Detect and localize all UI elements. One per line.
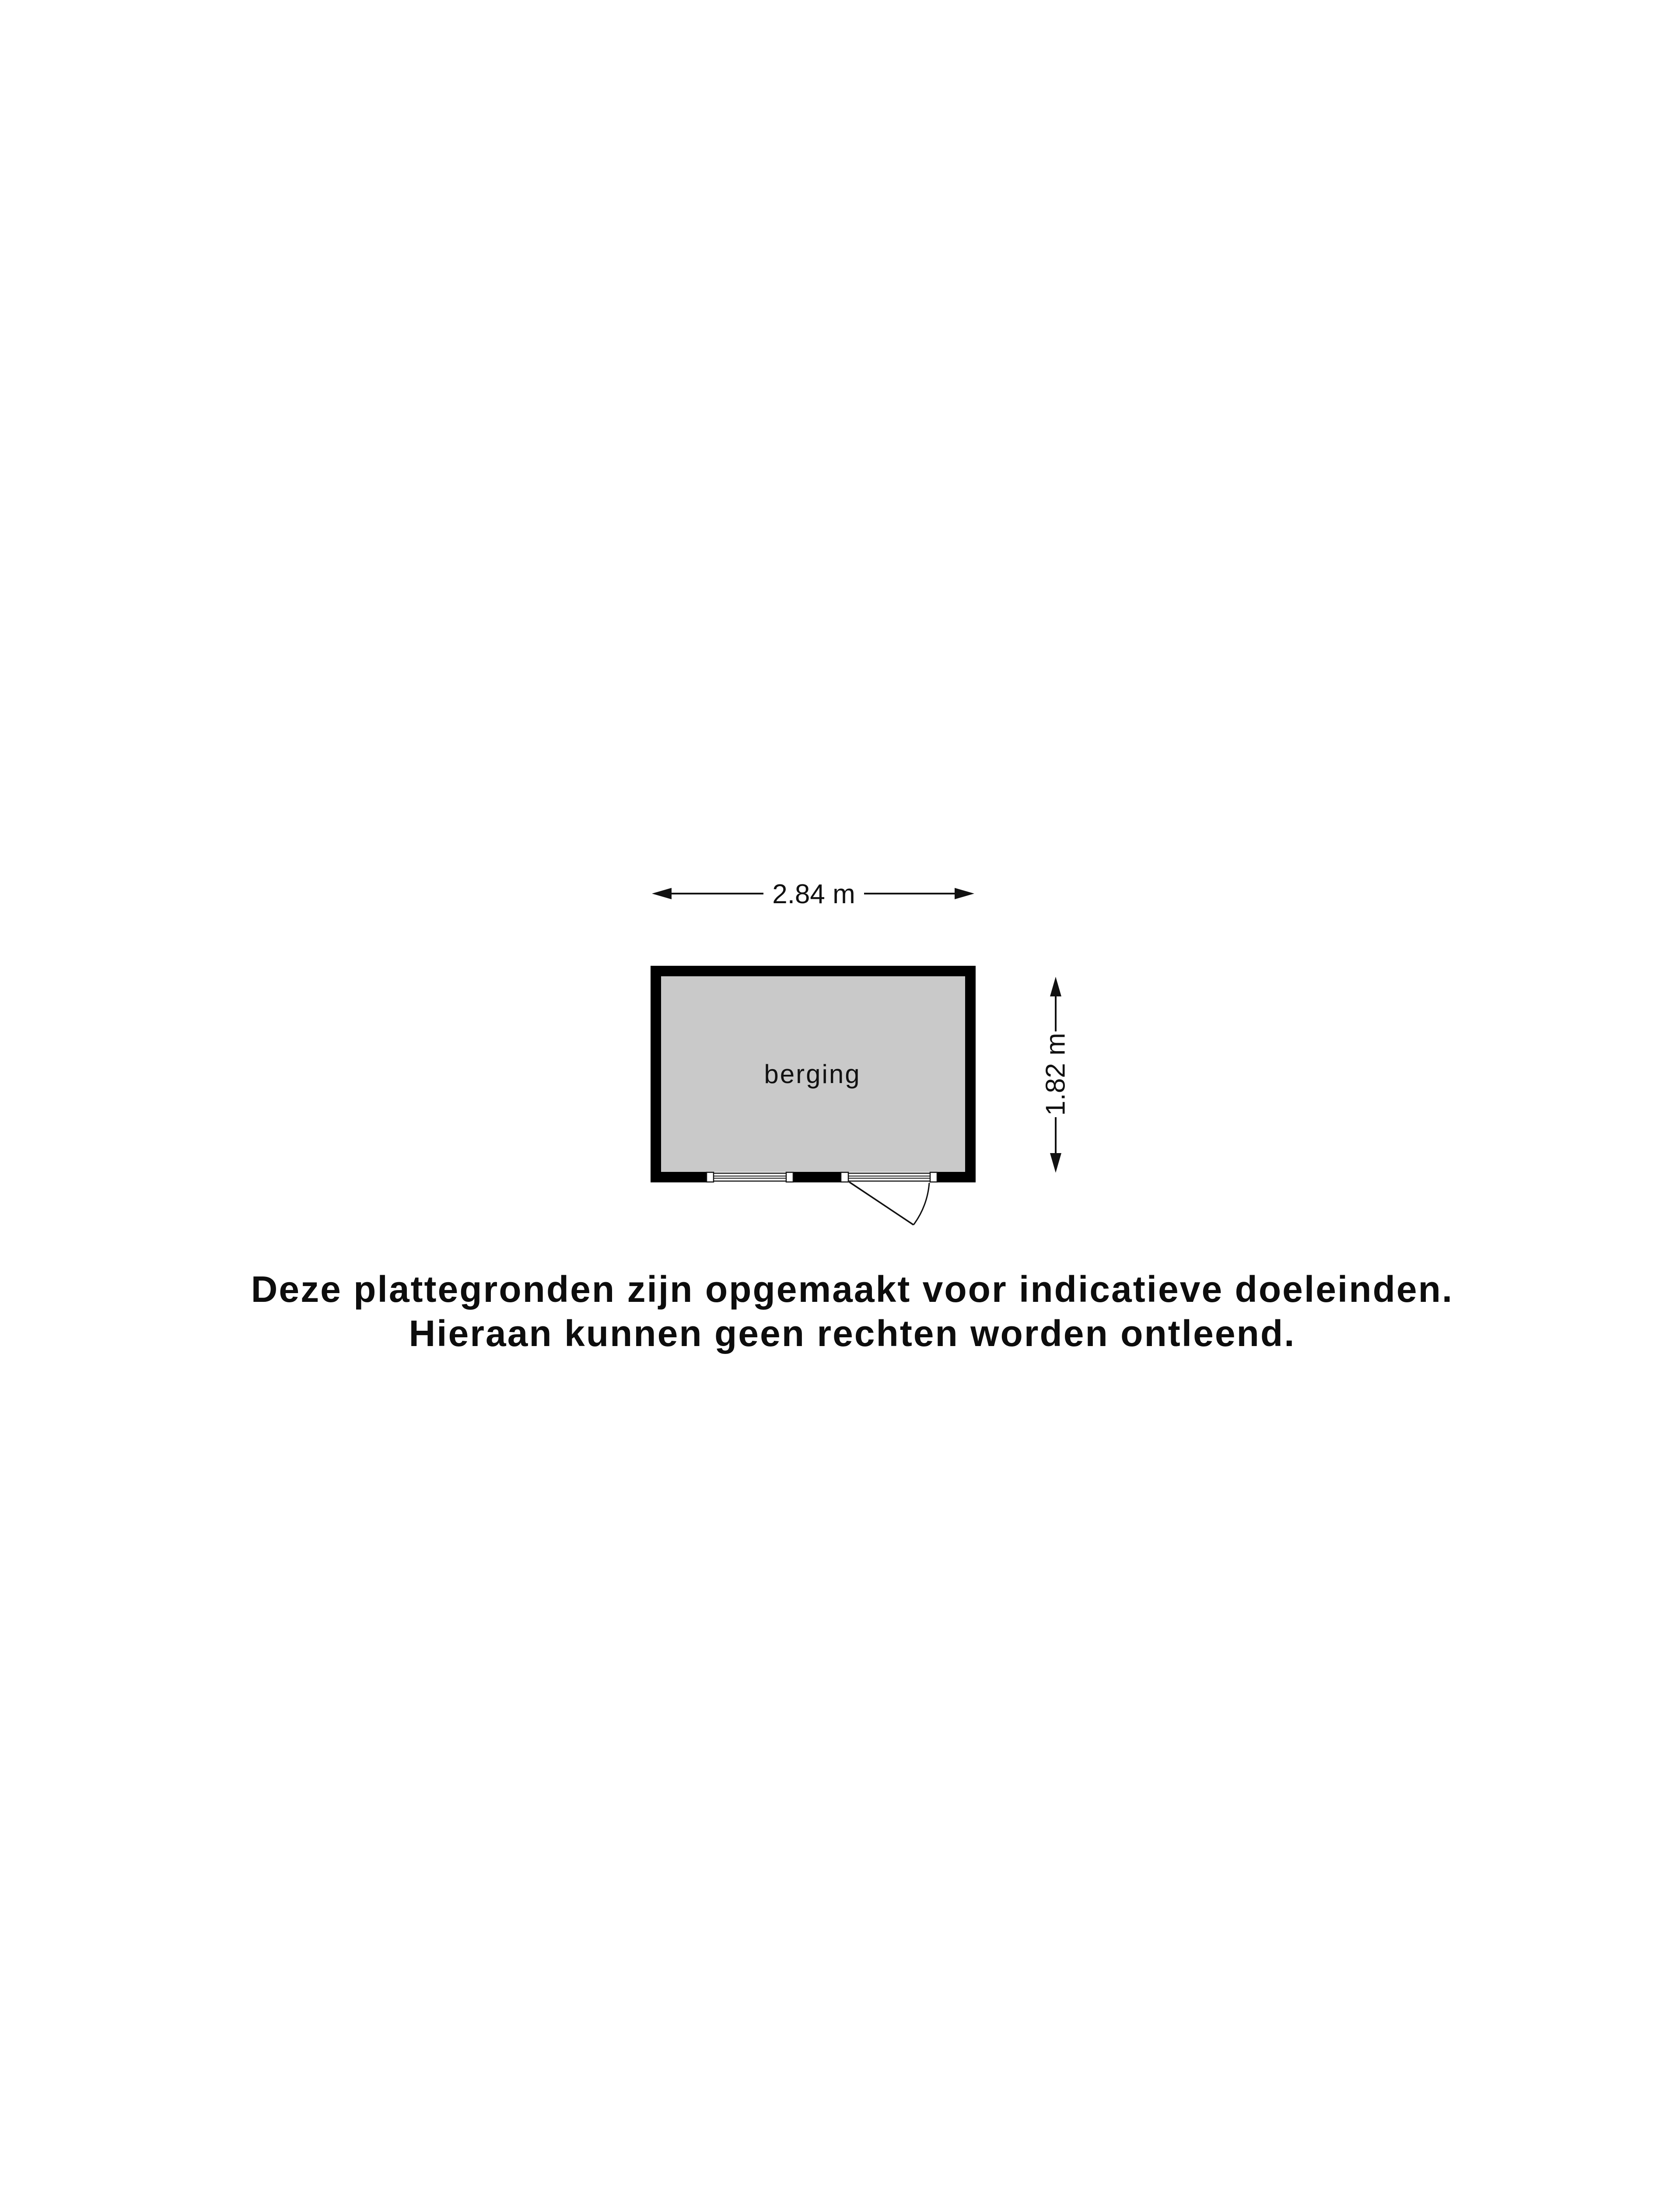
- width-dimension: 2.84 m: [652, 879, 974, 909]
- door-glazing: [848, 1173, 931, 1181]
- disclaimer: Deze plattegronden zijn opgemaakt voor i…: [12, 1267, 1680, 1356]
- height-dimension: 1.82 m: [1041, 977, 1071, 1173]
- disclaimer-line-1: Deze plattegronden zijn opgemaakt voor i…: [12, 1267, 1680, 1311]
- width-dimension-label: 2.84 m: [772, 879, 855, 909]
- door-jamb-left: [841, 1172, 848, 1182]
- window: [707, 1172, 793, 1182]
- window-glazing: [713, 1173, 787, 1181]
- floorplan-page: 2.84 m berging: [0, 0, 1680, 2188]
- height-dimension-label: 1.82 m: [1041, 1033, 1071, 1116]
- window-jamb-left: [707, 1172, 714, 1182]
- door-jamb-right: [930, 1172, 937, 1182]
- floorplan-svg: 2.84 m berging: [0, 0, 1680, 2188]
- arrowhead-right-icon: [955, 888, 974, 899]
- arrowhead-down-icon: [1050, 1153, 1061, 1173]
- room-berging: berging: [651, 966, 976, 1182]
- window-jamb-right: [786, 1172, 793, 1182]
- door: [841, 1172, 937, 1225]
- room-label: berging: [764, 1059, 861, 1089]
- door-swing-arc-icon: [913, 1183, 929, 1225]
- arrowhead-left-icon: [652, 888, 672, 899]
- door-leaf: [849, 1182, 913, 1225]
- disclaimer-line-2: Hieraan kunnen geen rechten worden ontle…: [12, 1311, 1680, 1356]
- arrowhead-up-icon: [1050, 977, 1061, 996]
